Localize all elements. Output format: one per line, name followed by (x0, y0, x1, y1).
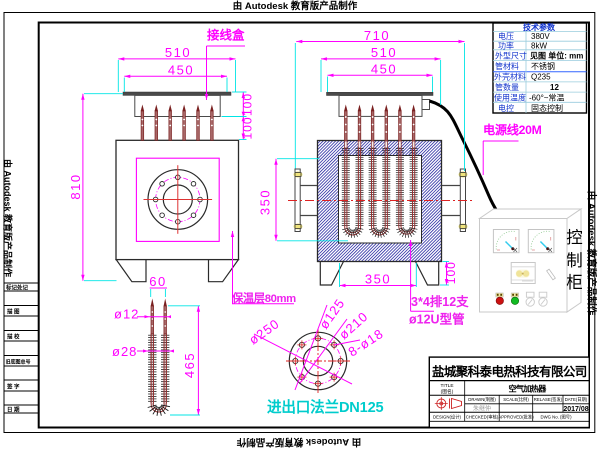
svg-text:由 Autodesk 教育版产品制作: 由 Autodesk 教育版产品制作 (586, 191, 598, 316)
svg-text:朱继仲: 朱继仲 (473, 405, 491, 413)
svg-text:旧底图总号: 旧底图总号 (6, 359, 31, 366)
svg-text:管数量: 管数量 (495, 82, 519, 92)
svg-text:不锈钢: 不锈钢 (531, 61, 555, 71)
svg-text:DESIGN(设计): DESIGN(设计) (433, 414, 461, 421)
svg-text:CHECKED(审核): CHECKED(审核) (466, 414, 499, 421)
svg-text:510: 510 (371, 45, 397, 60)
svg-text:盐城聚科泰电热科技有限公司: 盐城聚科泰电热科技有限公司 (432, 364, 587, 379)
svg-text:签 字: 签 字 (6, 383, 20, 391)
svg-text:管材料: 管材料 (495, 61, 519, 71)
svg-text:510: 510 (165, 45, 191, 60)
svg-text:柜: 柜 (566, 273, 583, 292)
svg-text:ø12: ø12 (114, 307, 139, 322)
svg-text:功率: 功率 (498, 41, 514, 51)
svg-text:TITLE: TITLE (440, 383, 453, 389)
svg-text:710: 710 (364, 28, 390, 43)
svg-text:电源线20M: 电源线20M (483, 122, 542, 137)
svg-text:日 期: 日 期 (7, 406, 20, 414)
svg-text:60: 60 (149, 274, 166, 289)
svg-text:外型尺寸: 外型尺寸 (495, 51, 527, 61)
svg-text:使用温度: 使用温度 (494, 93, 526, 103)
svg-text:100: 100 (444, 261, 458, 284)
svg-text:8kW: 8kW (531, 42, 547, 51)
svg-text:进出口法兰DN125: 进出口法兰DN125 (267, 398, 383, 416)
svg-text:外壳材料: 外壳材料 (494, 72, 526, 82)
svg-text:465: 465 (182, 352, 197, 378)
svg-text:由 Autodesk 教育版产品制作: 由 Autodesk 教育版产品制作 (233, 0, 358, 12)
svg-text:描 校: 描 校 (7, 333, 20, 341)
svg-text:RELASE(签发): RELASE(签发) (534, 396, 563, 403)
svg-text:控: 控 (566, 228, 583, 247)
svg-text:450: 450 (168, 63, 194, 78)
svg-text:380V: 380V (531, 32, 550, 41)
svg-text:由 Autodesk 教育版产品制作: 由 Autodesk 教育版产品制作 (236, 436, 361, 448)
svg-text:(图名): (图名) (441, 388, 454, 395)
svg-text:810: 810 (68, 173, 83, 199)
svg-text:APPROVED(批准): APPROVED(批准) (498, 414, 534, 421)
svg-text:技术参数: 技术参数 (523, 22, 556, 32)
svg-text:3*4排12支: 3*4排12支 (411, 294, 469, 309)
svg-text:描 图: 描 图 (7, 308, 20, 316)
svg-text:接线盒: 接线盒 (207, 28, 245, 43)
svg-text:12: 12 (550, 83, 559, 92)
svg-text:ø28: ø28 (112, 344, 137, 359)
svg-text:保温层80mm: 保温层80mm (231, 291, 296, 305)
svg-text:-60°~常温: -60°~常温 (529, 94, 564, 103)
svg-text:ø12U型管: ø12U型管 (409, 312, 465, 327)
svg-text:DRAWN(制图): DRAWN(制图) (468, 396, 496, 403)
svg-text:450: 450 (371, 62, 397, 77)
svg-text:100: 100 (241, 116, 255, 139)
svg-text:Q235: Q235 (531, 73, 551, 82)
svg-text:见图 单位: mm: 见图 单位: mm (530, 51, 583, 61)
svg-text:350: 350 (365, 272, 391, 287)
svg-text:350: 350 (258, 189, 273, 215)
svg-text:2017/08: 2017/08 (563, 406, 588, 413)
svg-text:电压: 电压 (498, 31, 514, 41)
svg-text:100: 100 (241, 93, 255, 116)
svg-text:空气加热器: 空气加热器 (509, 384, 548, 394)
svg-text:固态控制: 固态控制 (531, 103, 563, 113)
svg-text:电控: 电控 (498, 103, 514, 113)
svg-text:制: 制 (566, 251, 583, 270)
svg-text:SCALE(比例): SCALE(比例) (503, 396, 529, 403)
svg-text:标记处记: 标记处记 (5, 284, 29, 292)
